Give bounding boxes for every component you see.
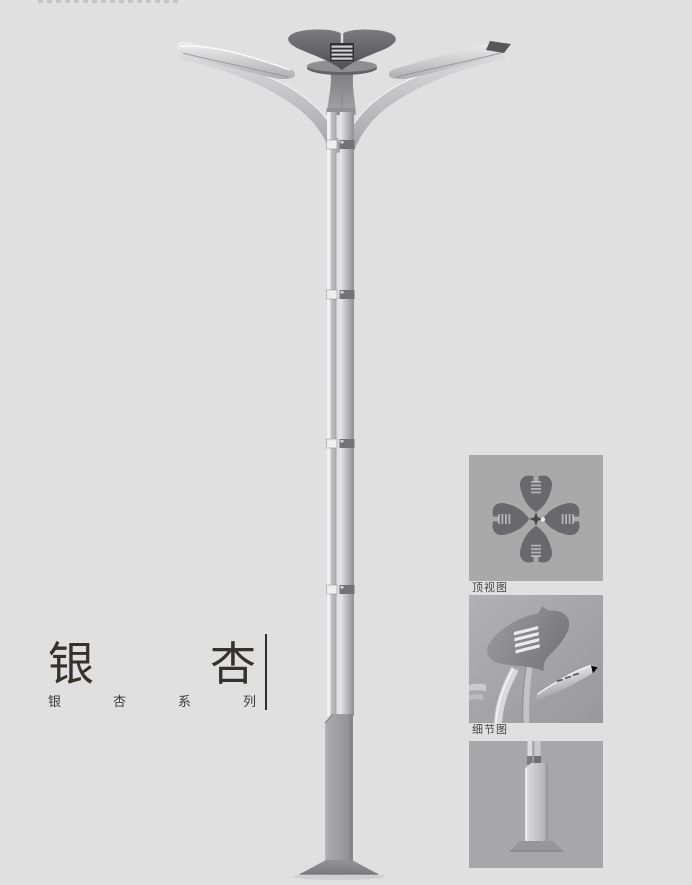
figure-base-view (469, 741, 603, 868)
subtitle-char: 银 (48, 696, 61, 709)
catalog-page: 银 杏 银 杏 系 列 (0, 0, 692, 885)
figure-label: 顶视图 (469, 581, 603, 595)
figure-label: 细节图 (469, 723, 603, 737)
figure-top-view: 顶视图 (469, 455, 603, 595)
detail-figures: 顶视图 (469, 455, 603, 868)
pole (327, 108, 356, 716)
right-arm (342, 42, 507, 154)
title-char: 杏 (210, 641, 256, 687)
subtitle-char: 杏 (113, 696, 126, 709)
detail-view-image (469, 595, 603, 723)
crown-louvers (330, 43, 354, 61)
top-view-image (469, 455, 603, 581)
product-title: 银 杏 (48, 641, 256, 687)
title-block: 银 杏 银 杏 系 列 (48, 641, 256, 709)
left-arm (177, 42, 342, 154)
base-view-image (469, 741, 603, 868)
title-char: 银 (48, 641, 94, 687)
title-divider (265, 634, 267, 710)
subtitle-char: 列 (243, 696, 256, 709)
figure-detail-view: 细节图 (469, 595, 603, 737)
series-subtitle: 银 杏 系 列 (48, 696, 256, 709)
base (293, 714, 385, 880)
subtitle-char: 系 (178, 696, 191, 709)
